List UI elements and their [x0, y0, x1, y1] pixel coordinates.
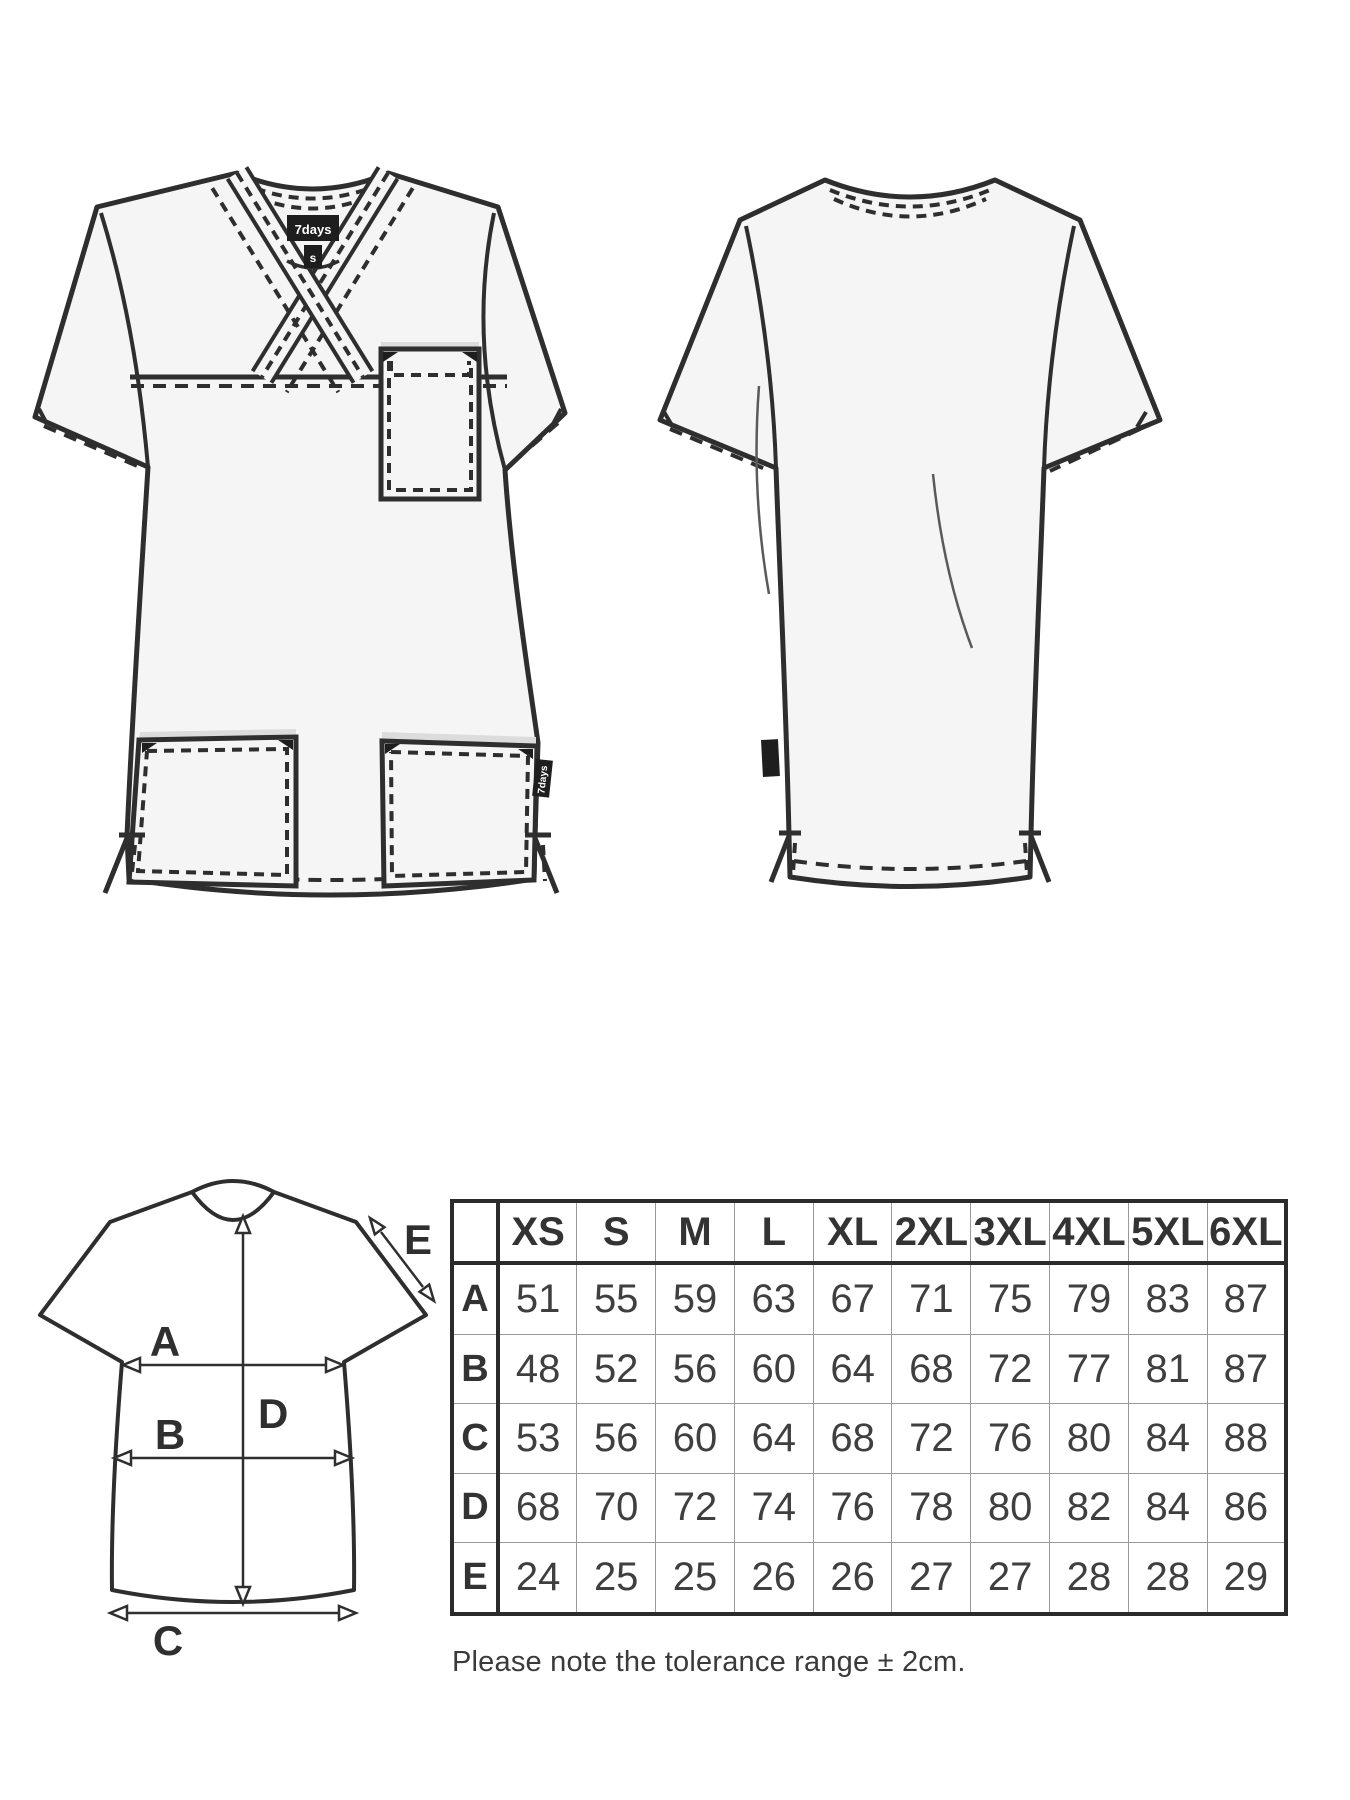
diagram-neck-back-arc — [192, 1181, 274, 1192]
size-value-cell: 28 — [1050, 1542, 1129, 1614]
size-value-cell: 28 — [1128, 1542, 1207, 1614]
size-value-cell: 81 — [1128, 1335, 1207, 1404]
size-value-cell: 74 — [734, 1473, 813, 1542]
col-header-3xl: 3XL — [971, 1201, 1050, 1263]
col-header-xl: XL — [813, 1201, 892, 1263]
neck-size-label: s — [304, 245, 322, 268]
size-value-cell: 55 — [577, 1263, 656, 1335]
size-value-cell: 56 — [656, 1335, 735, 1404]
col-header-6xl: 6XL — [1207, 1201, 1286, 1263]
col-header-2xl: 2XL — [892, 1201, 971, 1263]
col-header-5xl: 5XL — [1128, 1201, 1207, 1263]
col-header-4xl: 4XL — [1050, 1201, 1129, 1263]
size-value-cell: 27 — [892, 1542, 971, 1614]
size-value-cell: 76 — [813, 1473, 892, 1542]
diagram-tee-outline — [40, 1192, 426, 1602]
measurement-diagram: A B C D E — [10, 1150, 460, 1670]
size-value-cell: 72 — [892, 1404, 971, 1473]
measure-arrow-d — [236, 1216, 250, 1604]
col-header-xs: XS — [498, 1201, 577, 1263]
back-view-drawing — [640, 120, 1170, 890]
size-value-cell: 64 — [813, 1335, 892, 1404]
size-value-cell: 68 — [498, 1473, 577, 1542]
size-value-cell: 68 — [892, 1335, 971, 1404]
table-row: A 51 55 59 63 67 71 75 79 83 87 — [452, 1263, 1286, 1335]
lower-pocket-right — [382, 732, 537, 886]
size-value-cell: 59 — [656, 1263, 735, 1335]
back-side-tag — [761, 739, 780, 777]
size-value-cell: 86 — [1207, 1473, 1286, 1542]
size-value-cell: 24 — [498, 1542, 577, 1614]
table-row: E 24 25 25 26 26 27 27 28 28 29 — [452, 1542, 1286, 1614]
measure-arrow-b — [114, 1451, 352, 1465]
size-value-cell: 25 — [656, 1542, 735, 1614]
size-table: XS S M L XL 2XL 3XL 4XL 5XL 6XL A 51 55 — [450, 1199, 1288, 1616]
size-value-cell: 72 — [656, 1473, 735, 1542]
size-value-cell: 80 — [971, 1473, 1050, 1542]
size-value-cell: 51 — [498, 1263, 577, 1335]
diagram-neck-front-arc — [192, 1192, 274, 1220]
back-body — [660, 180, 1160, 887]
size-value-cell: 83 — [1128, 1263, 1207, 1335]
neck-brand-label: 7days — [287, 215, 339, 241]
size-value-cell: 77 — [1050, 1335, 1129, 1404]
measure-arrow-c — [110, 1606, 356, 1620]
size-chart-page: 7days s — [0, 0, 1350, 1800]
measure-label-b: B — [155, 1411, 185, 1458]
size-value-cell: 52 — [577, 1335, 656, 1404]
size-value-cell: 25 — [577, 1542, 656, 1614]
size-value-cell: 67 — [813, 1263, 892, 1335]
size-value-cell: 79 — [1050, 1263, 1129, 1335]
measure-label-e: E — [404, 1216, 432, 1263]
row-label-b: B — [452, 1335, 498, 1404]
row-label-e: E — [452, 1542, 498, 1614]
size-value-cell: 87 — [1207, 1263, 1286, 1335]
tolerance-note: Please note the tolerance range ± 2cm. — [452, 1646, 966, 1679]
neck-brand-label-text: 7days — [295, 222, 332, 237]
size-value-cell: 53 — [498, 1404, 577, 1473]
lower-pocket-left — [129, 729, 296, 886]
col-header-s: S — [577, 1201, 656, 1263]
table-row: C 53 56 60 64 68 72 76 80 84 88 — [452, 1404, 1286, 1473]
neck-size-label-text: s — [310, 251, 317, 265]
size-value-cell: 26 — [813, 1542, 892, 1614]
size-value-cell: 84 — [1128, 1473, 1207, 1542]
size-value-cell: 70 — [577, 1473, 656, 1542]
size-value-cell: 64 — [734, 1404, 813, 1473]
table-row: B 48 52 56 60 64 68 72 77 81 87 — [452, 1335, 1286, 1404]
col-header-l: L — [734, 1201, 813, 1263]
size-value-cell: 27 — [971, 1542, 1050, 1614]
size-value-cell: 88 — [1207, 1404, 1286, 1473]
size-value-cell: 60 — [734, 1335, 813, 1404]
col-header-m: M — [656, 1201, 735, 1263]
front-view-drawing: 7days s — [15, 145, 585, 905]
measure-label-a: A — [150, 1318, 180, 1365]
measure-label-c: C — [153, 1617, 183, 1664]
size-value-cell: 76 — [971, 1404, 1050, 1473]
size-value-cell: 63 — [734, 1263, 813, 1335]
measure-label-d: D — [258, 1390, 288, 1437]
size-value-cell: 68 — [813, 1404, 892, 1473]
size-value-cell: 48 — [498, 1335, 577, 1404]
size-value-cell: 71 — [892, 1263, 971, 1335]
row-label-d: D — [452, 1473, 498, 1542]
size-value-cell: 80 — [1050, 1404, 1129, 1473]
size-value-cell: 87 — [1207, 1335, 1286, 1404]
table-corner-cell — [452, 1201, 498, 1263]
table-header-row: XS S M L XL 2XL 3XL 4XL 5XL 6XL — [452, 1201, 1286, 1263]
size-value-cell: 56 — [577, 1404, 656, 1473]
size-value-cell: 72 — [971, 1335, 1050, 1404]
size-value-cell: 26 — [734, 1542, 813, 1614]
size-value-cell: 78 — [892, 1473, 971, 1542]
table-row: D 68 70 72 74 76 78 80 82 84 86 — [452, 1473, 1286, 1542]
size-value-cell: 84 — [1128, 1404, 1207, 1473]
size-value-cell: 75 — [971, 1263, 1050, 1335]
row-label-c: C — [452, 1404, 498, 1473]
chest-pocket — [381, 342, 479, 499]
size-value-cell: 60 — [656, 1404, 735, 1473]
size-value-cell: 29 — [1207, 1542, 1286, 1614]
row-label-a: A — [452, 1263, 498, 1335]
size-value-cell: 82 — [1050, 1473, 1129, 1542]
